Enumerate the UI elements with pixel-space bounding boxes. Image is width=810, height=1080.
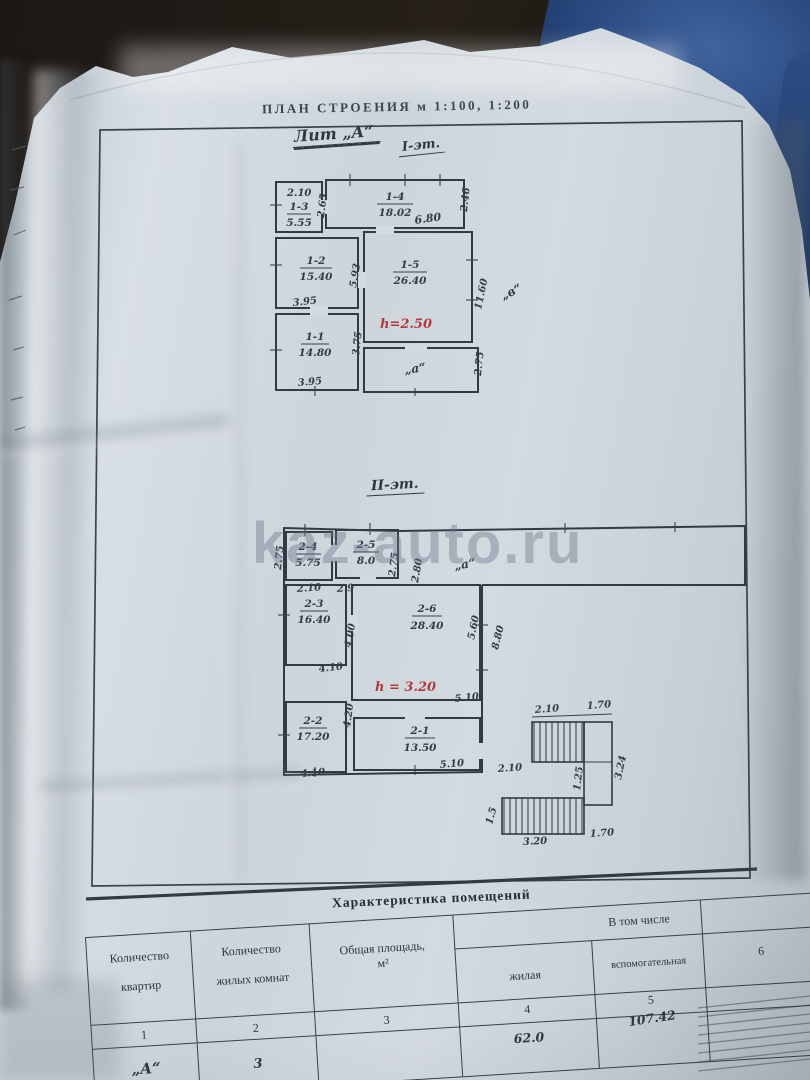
- room-number: 2-1: [410, 725, 430, 737]
- floor2-plan: 2.75 2-4 5.75 2.10 2-5 8.0 2.9 2.75 2.80…: [255, 495, 765, 855]
- dim-label: 4.10: [300, 767, 325, 780]
- room-area: 13.50: [404, 742, 438, 754]
- stairs-dim: 1.70: [589, 827, 614, 840]
- dim-label: 3.95: [297, 376, 322, 389]
- veranda-letter: „а“: [453, 555, 477, 573]
- dim-label: 2.9: [335, 583, 354, 595]
- stairs-dim: 3.24: [613, 754, 629, 780]
- room-area: 14.80: [299, 347, 333, 359]
- stairs: [502, 714, 612, 834]
- dim-label: 2.65: [316, 193, 330, 220]
- photo-of-document: ПЛАН СТРОЕНИЯ м 1:100, 1:200 Лит „А“ I-э…: [0, 0, 810, 1080]
- room-area: 5.75: [295, 557, 321, 569]
- room-number: 2-3: [304, 598, 324, 610]
- floor2-label: II-эт.: [366, 476, 425, 497]
- table-value-litera: „А“: [98, 1057, 195, 1080]
- dim-label: 2.10: [496, 762, 522, 775]
- room-area: 5.55: [286, 217, 312, 229]
- stairs-dim: 2.10: [533, 703, 559, 716]
- ceiling-height-note: h=2.50: [380, 317, 432, 332]
- table-value-rooms: 3: [202, 1053, 315, 1076]
- ceiling-height-note: h = 3.20: [375, 680, 436, 695]
- room-area: 8.0: [357, 555, 376, 567]
- dim-label: 2.10: [286, 188, 311, 199]
- dim-label: 11.60: [473, 278, 490, 311]
- stairs-dim: 3.20: [523, 836, 548, 848]
- col-index: 1: [96, 1025, 193, 1046]
- dim-label: 3.75: [351, 331, 364, 356]
- room-number: 1-3: [290, 201, 309, 213]
- room-number: 2-5: [356, 539, 376, 551]
- room-area: 16.40: [298, 614, 332, 626]
- room-number: 2-4: [298, 541, 318, 553]
- col-header-total-area: Общая площадь, м²: [314, 937, 452, 975]
- stairs-dim: 1.70: [586, 699, 611, 712]
- dim-label: 2.80: [410, 558, 425, 585]
- col-index: 6: [706, 940, 810, 962]
- room-area: 17.20: [297, 731, 331, 743]
- dim-label: 4.10: [318, 661, 343, 674]
- room-number: 2-6: [417, 603, 438, 615]
- col-header-living: жилая: [460, 964, 591, 987]
- room-area: 15.40: [300, 271, 334, 283]
- dim-label: 2.75: [473, 351, 487, 377]
- dim-label: 6.80: [414, 210, 443, 227]
- floor2-walls: [284, 526, 745, 775]
- col-header-apartments: Количество квартир: [91, 947, 190, 997]
- room-number: 1-5: [401, 259, 420, 271]
- floor1-plan: 2.10 2.65 1-3 5.55 1-4 18.02 6.80 2.46 1…: [255, 160, 555, 405]
- annex-letter: „а“: [403, 360, 426, 377]
- dim-label: 8.80: [490, 624, 507, 650]
- room-number: 1-1: [306, 331, 325, 343]
- dim-label: 2.46: [459, 187, 473, 213]
- dim-label: 2.10: [295, 582, 321, 595]
- page-edge-marks: [9, 146, 26, 430]
- col-header-auxiliary: вспомогательная: [594, 953, 703, 973]
- room-number: 1-2: [307, 255, 326, 267]
- table-value-living-area: 62.0: [464, 1026, 595, 1050]
- annex-letter: „в“: [498, 281, 524, 303]
- room-number: 1-4: [386, 191, 405, 203]
- stairs-dim: 1.5: [484, 806, 499, 826]
- dim-label: 2.75: [387, 552, 401, 579]
- dim-label: 5.10: [454, 691, 479, 704]
- room-area: 18.02: [379, 207, 412, 219]
- dim-label: 5.10: [439, 758, 464, 771]
- room-area: 28.40: [410, 620, 445, 632]
- col-header-living-rooms: Количество жилых комнат: [195, 940, 309, 991]
- room-area: 26.40: [393, 275, 428, 287]
- room-number: 2-2: [303, 715, 323, 727]
